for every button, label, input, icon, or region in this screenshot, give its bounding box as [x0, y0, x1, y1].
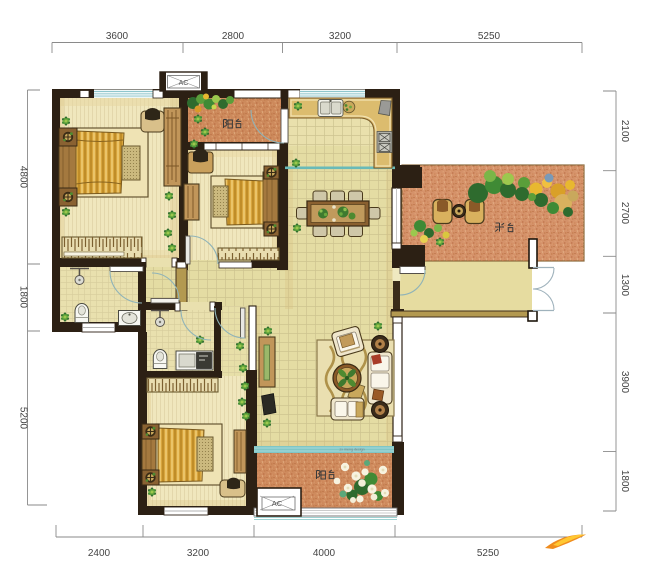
svg-text:1800: 1800	[18, 286, 29, 309]
svg-text:1300: 1300	[619, 274, 630, 297]
svg-text:4000: 4000	[313, 548, 336, 559]
svg-text:3200: 3200	[187, 548, 210, 559]
svg-text:5250: 5250	[477, 548, 500, 559]
svg-text:4800: 4800	[18, 166, 29, 189]
svg-text:1800: 1800	[619, 470, 630, 493]
svg-text:2100: 2100	[619, 120, 630, 143]
svg-text:AC: AC	[272, 499, 283, 508]
svg-text:2400: 2400	[88, 548, 111, 559]
svg-text:2800: 2800	[222, 31, 245, 42]
svg-text:3200: 3200	[329, 31, 352, 42]
svg-text:AC: AC	[179, 80, 189, 87]
svg-text:5250: 5250	[478, 31, 501, 42]
svg-text:3900: 3900	[619, 371, 630, 394]
svg-text:zx meng design: zx meng design	[339, 448, 364, 452]
svg-text:3600: 3600	[106, 31, 129, 42]
svg-text:2700: 2700	[619, 202, 630, 225]
svg-text:5200: 5200	[18, 407, 29, 430]
